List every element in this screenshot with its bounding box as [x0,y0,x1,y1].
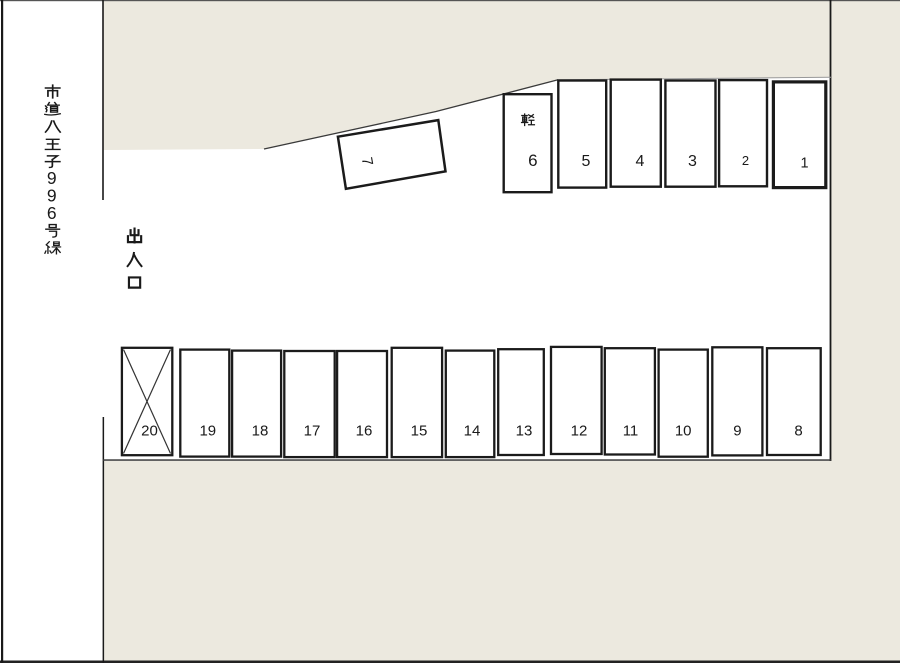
svg-text:15: 15 [411,422,428,439]
svg-text:4: 4 [636,153,645,170]
svg-text:11: 11 [623,422,639,439]
svg-text:14: 14 [464,422,481,439]
svg-text:5: 5 [582,153,591,170]
svg-text:18: 18 [252,422,269,439]
svg-text:16: 16 [356,422,373,439]
svg-text:17: 17 [304,422,321,439]
svg-text:8: 8 [794,422,802,439]
svg-text:13: 13 [516,422,533,439]
svg-text:20: 20 [141,422,158,439]
svg-text:2: 2 [742,153,749,168]
svg-text:10: 10 [675,422,692,439]
svg-text:1: 1 [800,155,808,171]
svg-text:12: 12 [571,422,588,439]
svg-text:3: 3 [688,153,697,170]
svg-text:9: 9 [733,422,741,439]
svg-text:6: 6 [528,151,537,170]
svg-text:6: 6 [47,203,57,223]
svg-text:19: 19 [199,422,216,439]
